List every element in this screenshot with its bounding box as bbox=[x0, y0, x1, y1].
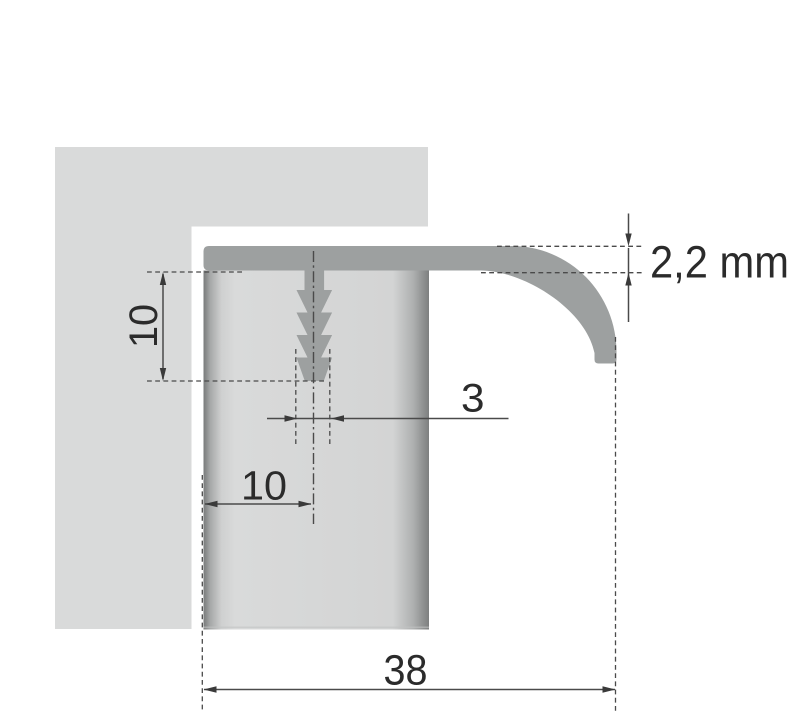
svg-text:38: 38 bbox=[384, 647, 428, 695]
svg-text:2,2 mm: 2,2 mm bbox=[650, 237, 789, 288]
svg-text:3: 3 bbox=[461, 377, 485, 421]
svg-text:10: 10 bbox=[241, 463, 287, 509]
svg-text:10: 10 bbox=[122, 304, 166, 348]
